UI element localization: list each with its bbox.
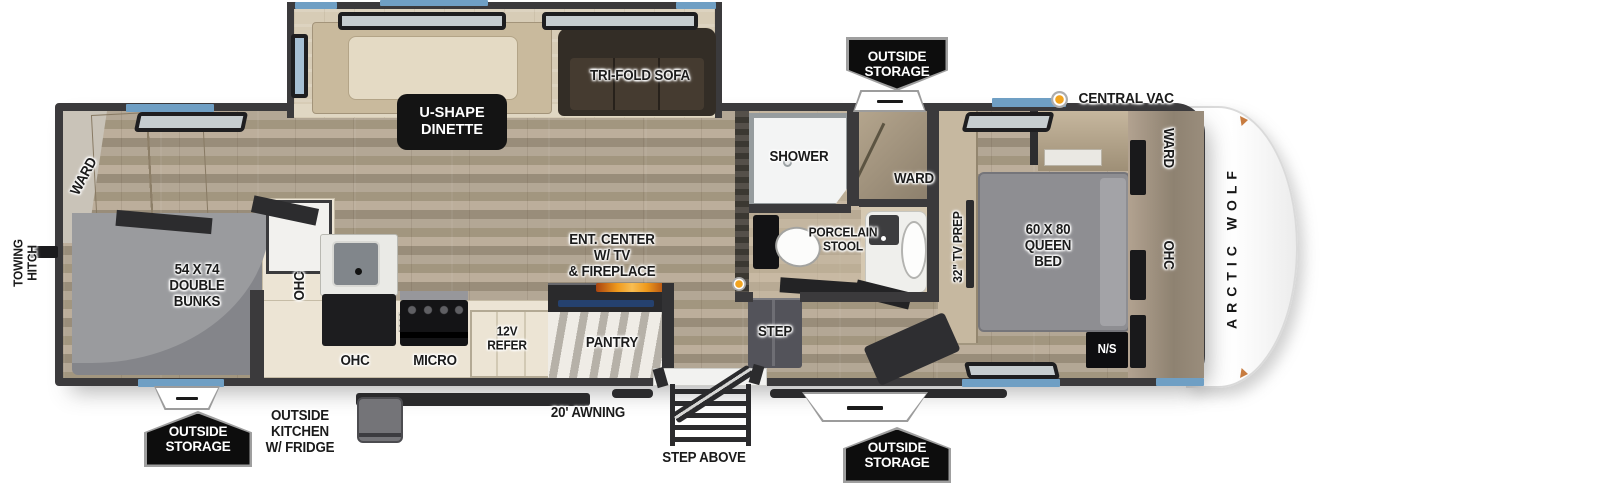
outside-storage-badge-br-label: OUTSIDE STORAGE [846,430,949,481]
vanity-bowl [901,221,927,279]
range-hood-edge [400,291,468,300]
outside-storage-badge-top: OUTSIDE STORAGE [846,37,948,91]
central-vac-dot [1051,91,1068,108]
bath-bottom-wall-left [735,292,753,302]
front-ward-label: WARD [1159,128,1175,168]
step-above-label: STEP ABOVE [662,451,745,467]
window-strip-bottom-front [1156,378,1204,386]
outside-storage-badge-bl-label: OUTSIDE STORAGE [147,414,250,465]
slideout-window-strip-mid [380,0,488,6]
stove-range [400,300,468,346]
sofa-label: TRI-FOLD SOFA [590,69,690,85]
bedroom-window-top [962,112,1055,132]
kitchen-ohc-lower-label: OHC [340,354,369,370]
tv-dash [966,200,974,288]
tv-prep-label: 32" TV PREP [951,211,965,282]
vac-inlet-dot [732,277,746,291]
slideout-window-left [338,12,506,30]
bath-bottom-wall-right [800,292,939,302]
window-strip-rear-top [126,104,214,112]
refer-label: 12V REFER [487,325,527,354]
baggage-door-bl-handle [176,397,198,400]
awning-label: 20' AWNING [551,406,625,422]
outside-storage-badge-top-label: OUTSIDE STORAGE [849,40,946,89]
awning-rail-left [612,389,653,398]
pantry-label: PANTRY [586,336,638,352]
bed-pillows [1100,178,1126,326]
outside-storage-badge-bottom-left: OUTSIDE STORAGE [144,411,252,467]
micro-label: MICRO [413,354,457,370]
front-cabinet-slab-3 [1130,315,1146,368]
vanity-faucet-dot [881,236,886,241]
baggage-door-top-handle [877,100,903,103]
shower-ward-divider [847,111,859,206]
baggage-door-top [853,90,926,112]
bath-ward-cabinet [859,111,929,202]
faucet-dot [355,268,362,275]
bath-slat-wall [735,111,749,301]
kitchen-dark-counter [322,294,396,346]
fireplace-glow [596,283,668,292]
outside-kitchen-label: OUTSIDE KITCHEN W/ FRIDGE [266,409,335,457]
slideout-window-strip-right [676,2,716,9]
kitchen-sink [332,241,380,287]
dinette-label-plate: U-SHAPE DINETTE [397,94,507,150]
outside-fridge [357,397,403,443]
slideout-side-window [291,34,308,98]
step-label: STEP [758,325,792,341]
bunks-label: 54 X 74 DOUBLE BUNKS [169,263,224,311]
bath-bedroom-wall [927,111,939,302]
nightstand-label: N/S [1098,343,1117,357]
front-cabinet-slab-1 [1130,140,1146,195]
pantry-end-panel [662,283,674,378]
towing-hitch-label: TOWING HITCH [12,239,41,287]
cabinet-front [1044,149,1102,166]
bath-ward-label: WARD [894,172,934,188]
slideout-window-right [542,12,698,30]
shower-label: SHOWER [770,150,829,166]
front-cabinet-slab-2 [1130,250,1146,300]
central-vac-label: CENTRAL VAC [1079,92,1174,108]
floorplan-canvas: ARCTIC WOLF TOWING HITCH WARD 54 X 74 DO… [0,0,1600,488]
dinette-label: U-SHAPE DINETTE [419,105,484,138]
baggage-door-br-handle [847,406,883,410]
slideout-window-strip-left [295,2,337,9]
baggage-door-bottom-right [802,392,928,422]
step-rung-5 [673,437,748,442]
ent-center-label: ENT. CENTER W/ TV & FIREPLACE [569,233,656,281]
brand-wordmark: ARCTIC WOLF [1224,165,1239,329]
baggage-door-bottom-left [154,386,220,410]
front-ohc-label: OHC [1159,240,1175,269]
step-rung-4 [673,425,748,430]
tv-screen-strip [558,300,654,307]
dinette-table [348,36,518,100]
queen-bed-label: 60 X 80 QUEEN BED [1025,223,1072,271]
bunkroom-divider-wall [250,290,264,378]
outside-storage-badge-bottom-right: OUTSIDE STORAGE [843,427,951,483]
bunkroom-window [134,112,248,132]
shower-front-wall [749,204,851,213]
window-strip-bottom-bedroom [962,379,1060,387]
kitchen-ohc-upper-label: OHC [293,271,309,300]
bedroom-window-bottom [964,362,1060,379]
porcelain-stool-label: PORCELAIN STOOL [809,226,878,255]
